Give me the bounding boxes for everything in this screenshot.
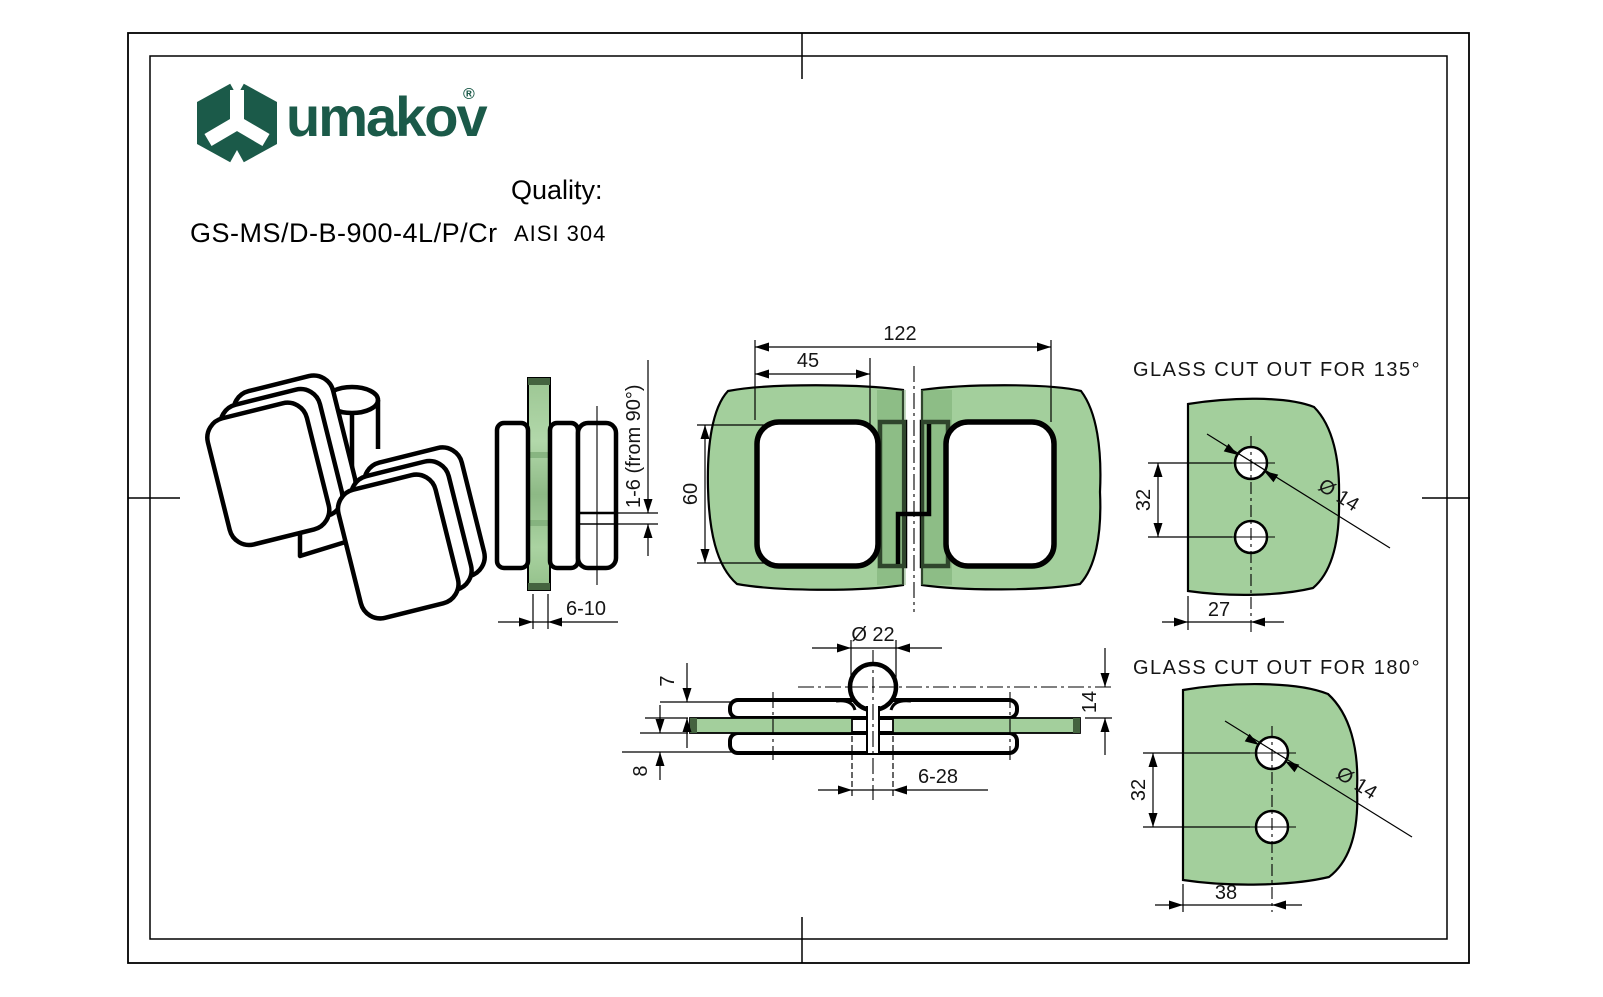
dim-height-label: 60 [680,483,702,505]
dim-center-gap-label: 6-28 [918,766,958,788]
dim-knuckle-dia-label: Ø 22 [851,624,894,646]
side-glass [528,378,550,590]
side-view: 1-6 (from 90°) 6-10 [497,360,658,629]
side-right-plate [550,423,578,568]
dim-adjust-label: 1-6 (from 90°) [623,384,645,508]
dim-plate-top-label: 7 [657,675,679,686]
cutout-135-glass [1188,399,1339,595]
dim-total-width-label: 122 [883,323,916,345]
cutout-180-title: GLASS CUT OUT FOR 180° [1133,657,1421,679]
section-view: Ø 22 7 8 14 [622,624,1115,800]
dim-pivot-height-label: 14 [1079,691,1101,713]
dim-180-edge-distance-label: 38 [1215,882,1237,904]
side-glass-cap-top [528,378,550,385]
isometric-view [198,371,494,622]
cutout-135-title: GLASS CUT OUT FOR 135° [1133,359,1421,381]
dim-plate-bottom-label: 8 [630,765,652,776]
drawing-sheet: 1-6 (from 90°) 6-10 [0,0,1603,997]
front-left-plate [757,422,878,566]
cutout-135-view: GLASS CUT OUT FOR 135° 32 27 [1133,359,1421,632]
dim-center-width-label: 45 [797,350,819,372]
cutout-180-view: GLASS CUT OUT FOR 180° 32 38 [1128,657,1421,912]
dim-135-edge-distance-label: 27 [1208,599,1230,621]
dim-glass-thickness-label: 6-10 [566,598,606,620]
section-glass-left [690,718,852,733]
section-glass-right [893,718,1080,733]
dim-135-hole-spacing-label: 32 [1133,489,1155,511]
front-view: 122 45 60 [680,323,1100,612]
front-right-plate [946,422,1054,566]
dim-180-hole-spacing-label: 32 [1128,779,1150,801]
side-glass-cap-bottom [528,583,550,590]
cutout-180-glass [1183,684,1357,885]
side-left-plate [497,423,528,568]
